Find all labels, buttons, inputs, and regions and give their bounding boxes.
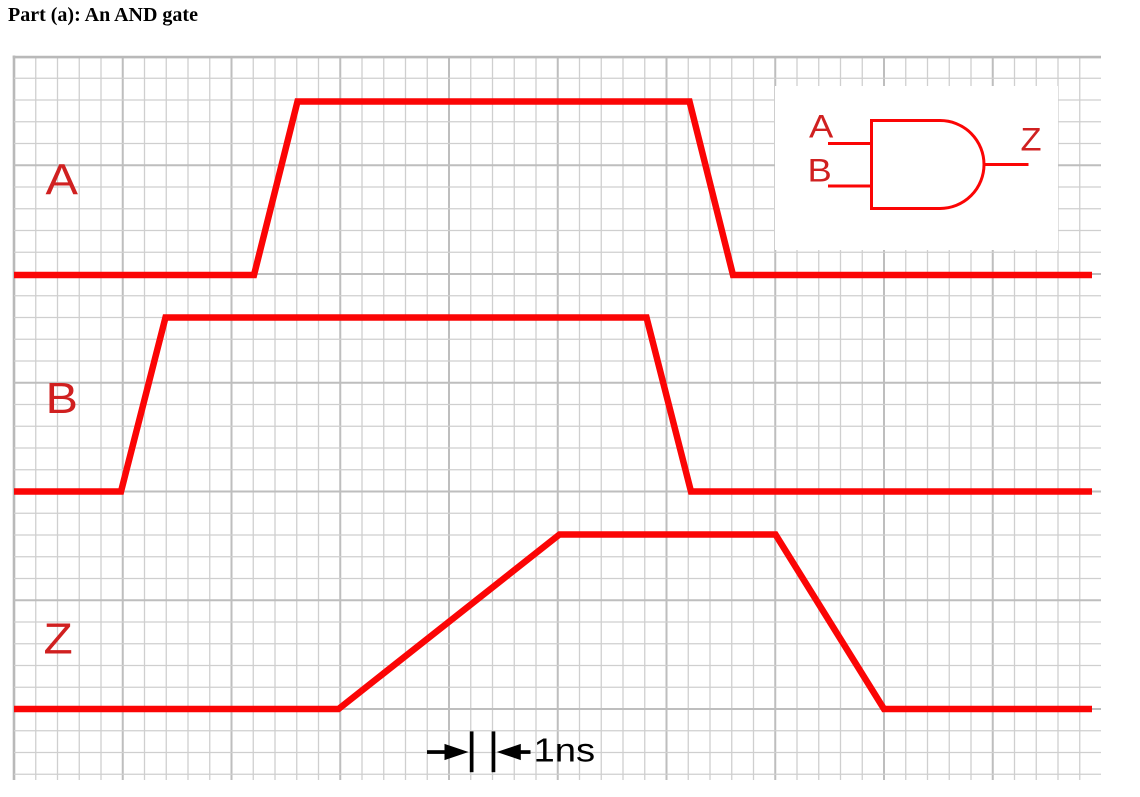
svg-text:B: B [808, 153, 832, 189]
svg-text:1ns: 1ns [534, 732, 596, 769]
svg-text:A: A [46, 155, 79, 204]
svg-text:Z: Z [1021, 122, 1042, 158]
svg-text:B: B [46, 373, 78, 422]
svg-text:A: A [809, 109, 833, 145]
svg-text:Z: Z [44, 614, 73, 663]
